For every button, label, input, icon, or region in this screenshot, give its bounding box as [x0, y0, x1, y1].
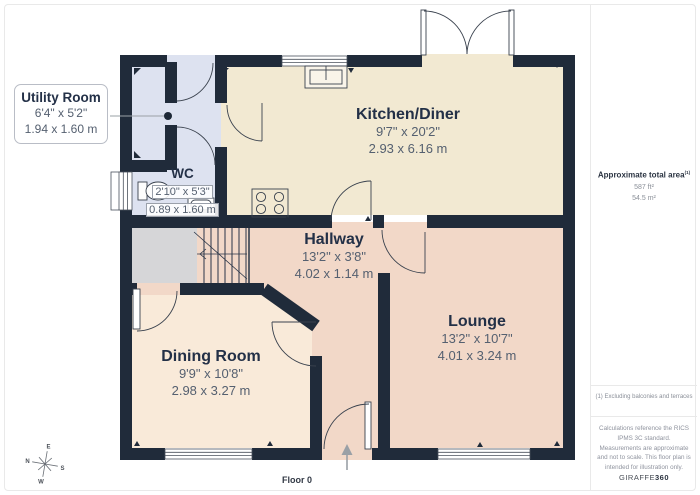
- floorplan-page: N E S W Utility Room 6'4" x 5'2" 1.94 x …: [0, 0, 700, 495]
- wc-sink-icon: [188, 198, 214, 212]
- utility-room-metric: 1.94 x 1.60 m: [17, 122, 105, 138]
- utility-room-imperial: 6'4" x 5'2": [17, 106, 105, 122]
- area-footnote-marker: (1): [685, 170, 691, 175]
- info-panel: Approximate total area(1) 587 ft² 54.5 m…: [590, 4, 697, 491]
- compass-n: N: [25, 459, 29, 465]
- panel-divider-bottom: [591, 416, 697, 417]
- total-area-imperial: 587 ft²: [591, 184, 697, 191]
- total-area-metric: 54.5 m²: [591, 195, 697, 202]
- disclaimer-text: Calculations reference the RICS IPMS 3C …: [596, 424, 692, 473]
- compass-e: E: [46, 445, 50, 451]
- area-footnote: (1) Excluding balconies and terraces: [595, 394, 693, 400]
- utility-room-callout: Utility Room 6'4" x 5'2" 1.94 x 1.60 m: [14, 84, 108, 144]
- compass-s: S: [60, 466, 64, 472]
- utility-room-name: Utility Room: [17, 90, 105, 106]
- kitchen-sink-icon: [305, 66, 347, 88]
- window-lounge-bottom: [438, 449, 530, 459]
- window-dining-bottom: [165, 449, 252, 459]
- total-area-block: Approximate total area(1) 587 ft² 54.5 m…: [591, 170, 697, 202]
- total-area-title: Approximate total area(1): [591, 170, 697, 180]
- compass-w: W: [38, 480, 44, 486]
- french-doors: [421, 10, 514, 55]
- panel-divider-top: [591, 385, 697, 386]
- window-left: [111, 172, 132, 210]
- brand-logo: GIRAFFE360: [591, 473, 697, 482]
- floor-label: Floor 0: [247, 475, 347, 485]
- window-kitchen-top: [282, 56, 347, 66]
- compass-icon: N E S W: [25, 445, 64, 486]
- toilet-icon: [138, 182, 170, 200]
- room-fills: [130, 54, 565, 460]
